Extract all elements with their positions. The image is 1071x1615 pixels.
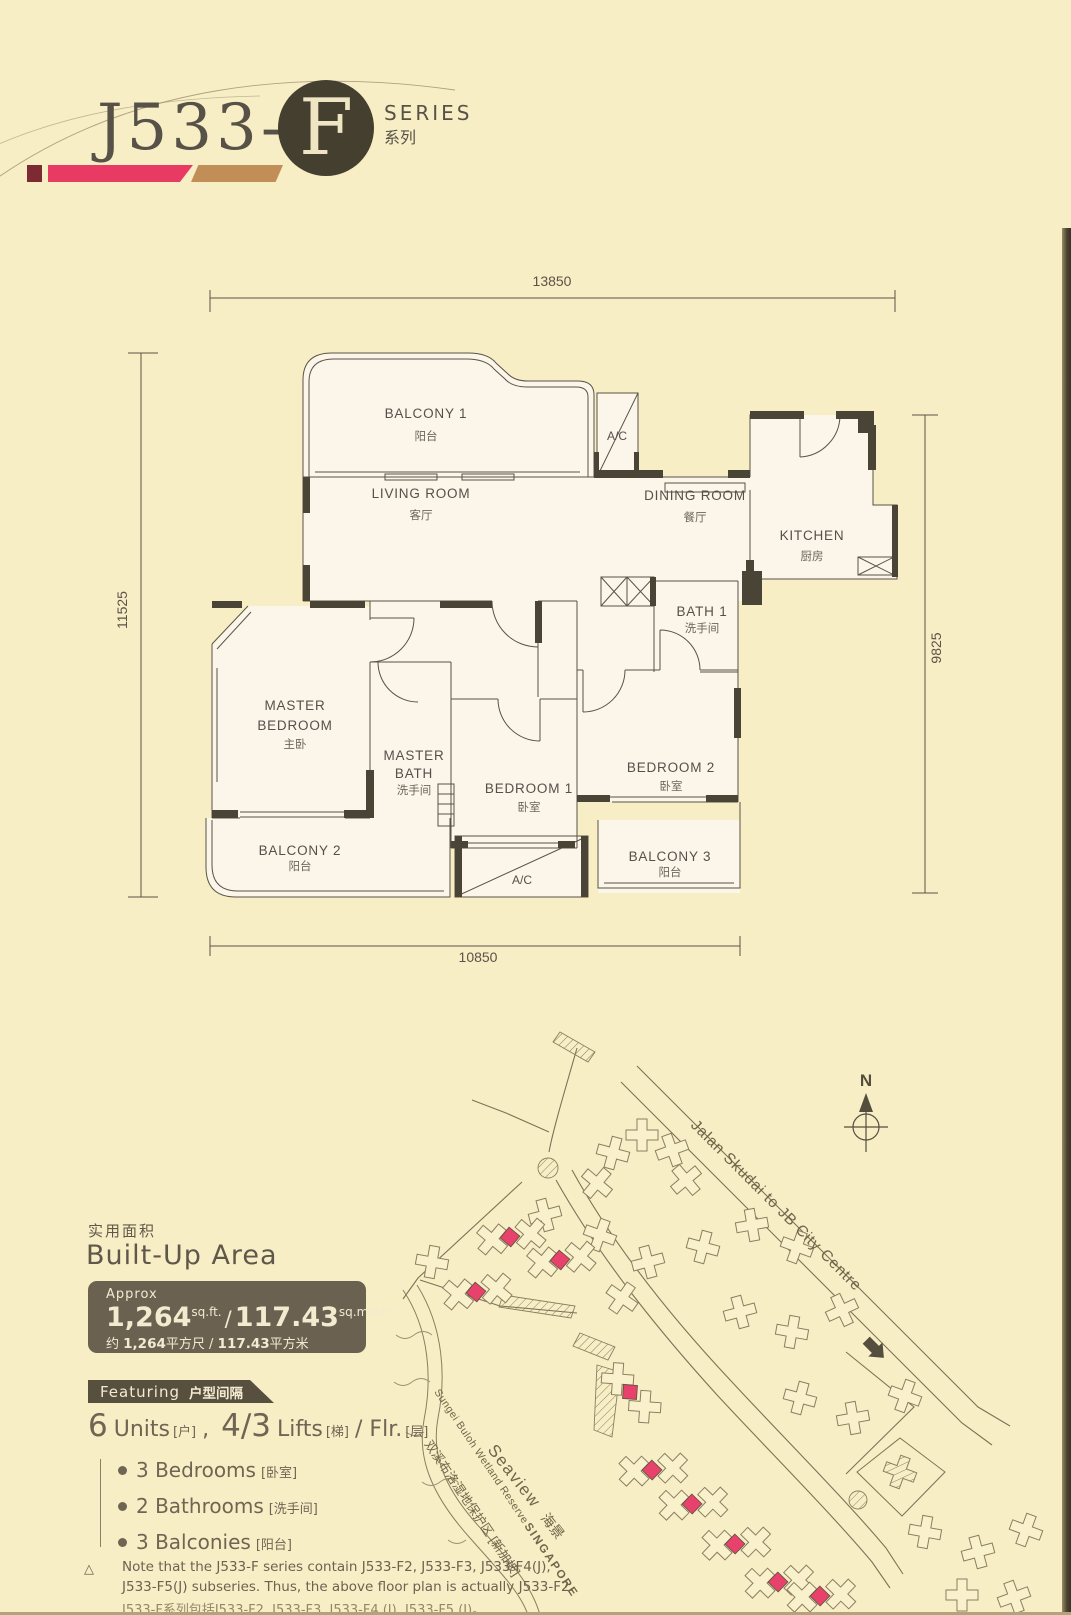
label-living: LIVING ROOM <box>372 486 471 501</box>
page-title: J533- <box>97 96 286 160</box>
note-line2: J533-F5(J) subseries. Thus, the above fl… <box>122 1579 574 1595</box>
builtup-title-zh: 实用面积 <box>88 1220 156 1241</box>
featuring-banner: Featuring 户型间隔 <box>88 1380 274 1403</box>
label-mbath-1: MASTER <box>383 748 444 763</box>
label-bed1: BEDROOM 1 <box>485 781 573 796</box>
road-label: Jalan Skudai to JB City Centre <box>687 1117 865 1295</box>
label-master-2: BEDROOM <box>257 718 332 733</box>
sqm-unit: sq.meter <box>339 1305 393 1319</box>
approx-label: Approx <box>106 1287 158 1302</box>
lifts-count: 4/3 <box>221 1408 271 1444</box>
builtup-title-en: Built-Up Area <box>86 1240 278 1271</box>
featuring-label-zh: 户型间隔 <box>189 1382 243 1402</box>
dimension-right: 9825 <box>928 632 944 663</box>
area-values: 1,264sq.ft./117.43sq.meter <box>106 1302 393 1333</box>
series-letter-badge: F <box>278 80 374 176</box>
page-edge-shadow <box>1062 228 1071 1615</box>
label-balcony2-zh: 阳台 <box>289 859 312 873</box>
north-label: N <box>860 1071 872 1090</box>
bullet-dot <box>118 1538 127 1547</box>
north-compass: N <box>844 1071 888 1152</box>
label-dining: DINING ROOM <box>644 488 746 503</box>
label-balcony3: BALCONY 3 <box>629 849 712 864</box>
dimension-bottom: 10850 <box>459 949 498 965</box>
label-balcony1-zh: 阳台 <box>415 429 438 443</box>
sqft-unit: sq.ft. <box>191 1305 221 1319</box>
area-values-zh: 约 1,264平方尺 / 117.43平方米 <box>106 1333 309 1352</box>
label-bath1: BATH 1 <box>676 604 727 619</box>
bullet-dot <box>118 1502 127 1511</box>
dimension-top: 13850 <box>533 273 572 289</box>
label-master-1: MASTER <box>264 698 325 713</box>
note-mark: △ <box>84 1562 94 1577</box>
location-map: N Jalan Skudai to JB City Centre Seaview… <box>390 1020 1071 1615</box>
bullet-dot <box>118 1466 127 1475</box>
units-lifts-line: 6 Units [户] , 4/3 Lifts [梯] / Flr. [层] <box>88 1408 428 1444</box>
floor-plan-fills <box>206 353 897 897</box>
label-balcony1: BALCONY 1 <box>385 406 468 421</box>
sqft-value: 1,264 <box>106 1302 191 1333</box>
label-balcony2: BALCONY 2 <box>259 843 342 858</box>
brochure-page: J533- F SERIES 系列 <box>0 0 1071 1615</box>
bullet-bedrooms: 3 Bedrooms [卧室] <box>118 1458 297 1482</box>
label-mbath-zh: 洗手间 <box>397 783 432 797</box>
units-count: 6 <box>88 1408 108 1444</box>
series-label-zh: 系列 <box>384 124 416 148</box>
road-direction-arrow <box>859 1333 891 1365</box>
label-bed2: BEDROOM 2 <box>627 760 715 775</box>
label-ac-top: A/C <box>607 429 627 443</box>
label-bed1-zh: 卧室 <box>518 800 541 814</box>
floor-plan: 13850 11525 9825 10850 BALCONY 1 阳台 A/C … <box>0 240 1071 980</box>
featuring-label-en: Featuring <box>100 1383 180 1401</box>
sqm-value: 117.43 <box>235 1302 339 1333</box>
dimension-left: 11525 <box>114 591 130 629</box>
label-bath1-zh: 洗手间 <box>685 621 720 635</box>
label-kitchen: KITCHEN <box>780 528 845 543</box>
builtup-area-panel: Approx 1,264sq.ft./117.43sq.meter 约 1,26… <box>88 1281 366 1353</box>
label-kitchen-zh: 厨房 <box>801 549 824 563</box>
label-mbath-2: BATH <box>395 766 433 781</box>
map-buildings <box>413 1119 1046 1615</box>
note-line1: Note that the J533-F series contain J533… <box>122 1559 551 1575</box>
label-living-zh: 客厅 <box>410 508 433 522</box>
accent-band-tan <box>191 165 283 182</box>
label-bed2-zh: 卧室 <box>660 779 683 793</box>
area-slash: / <box>222 1307 235 1331</box>
bullet-rule <box>100 1459 101 1547</box>
bullet-bathrooms: 2 Bathrooms [洗手间] <box>118 1494 318 1518</box>
label-master-zh: 主卧 <box>284 737 307 751</box>
accent-band-pink <box>48 165 193 182</box>
series-label-en: SERIES <box>384 101 472 125</box>
bullet-balconies: 3 Balconies [阳台] <box>118 1530 292 1554</box>
label-balcony3-zh: 阳台 <box>659 865 682 879</box>
accent-band-maroon <box>27 165 42 182</box>
label-ac-bottom: A/C <box>512 873 532 887</box>
label-dining-zh: 餐厅 <box>684 510 707 524</box>
series-letter: F <box>299 89 353 167</box>
